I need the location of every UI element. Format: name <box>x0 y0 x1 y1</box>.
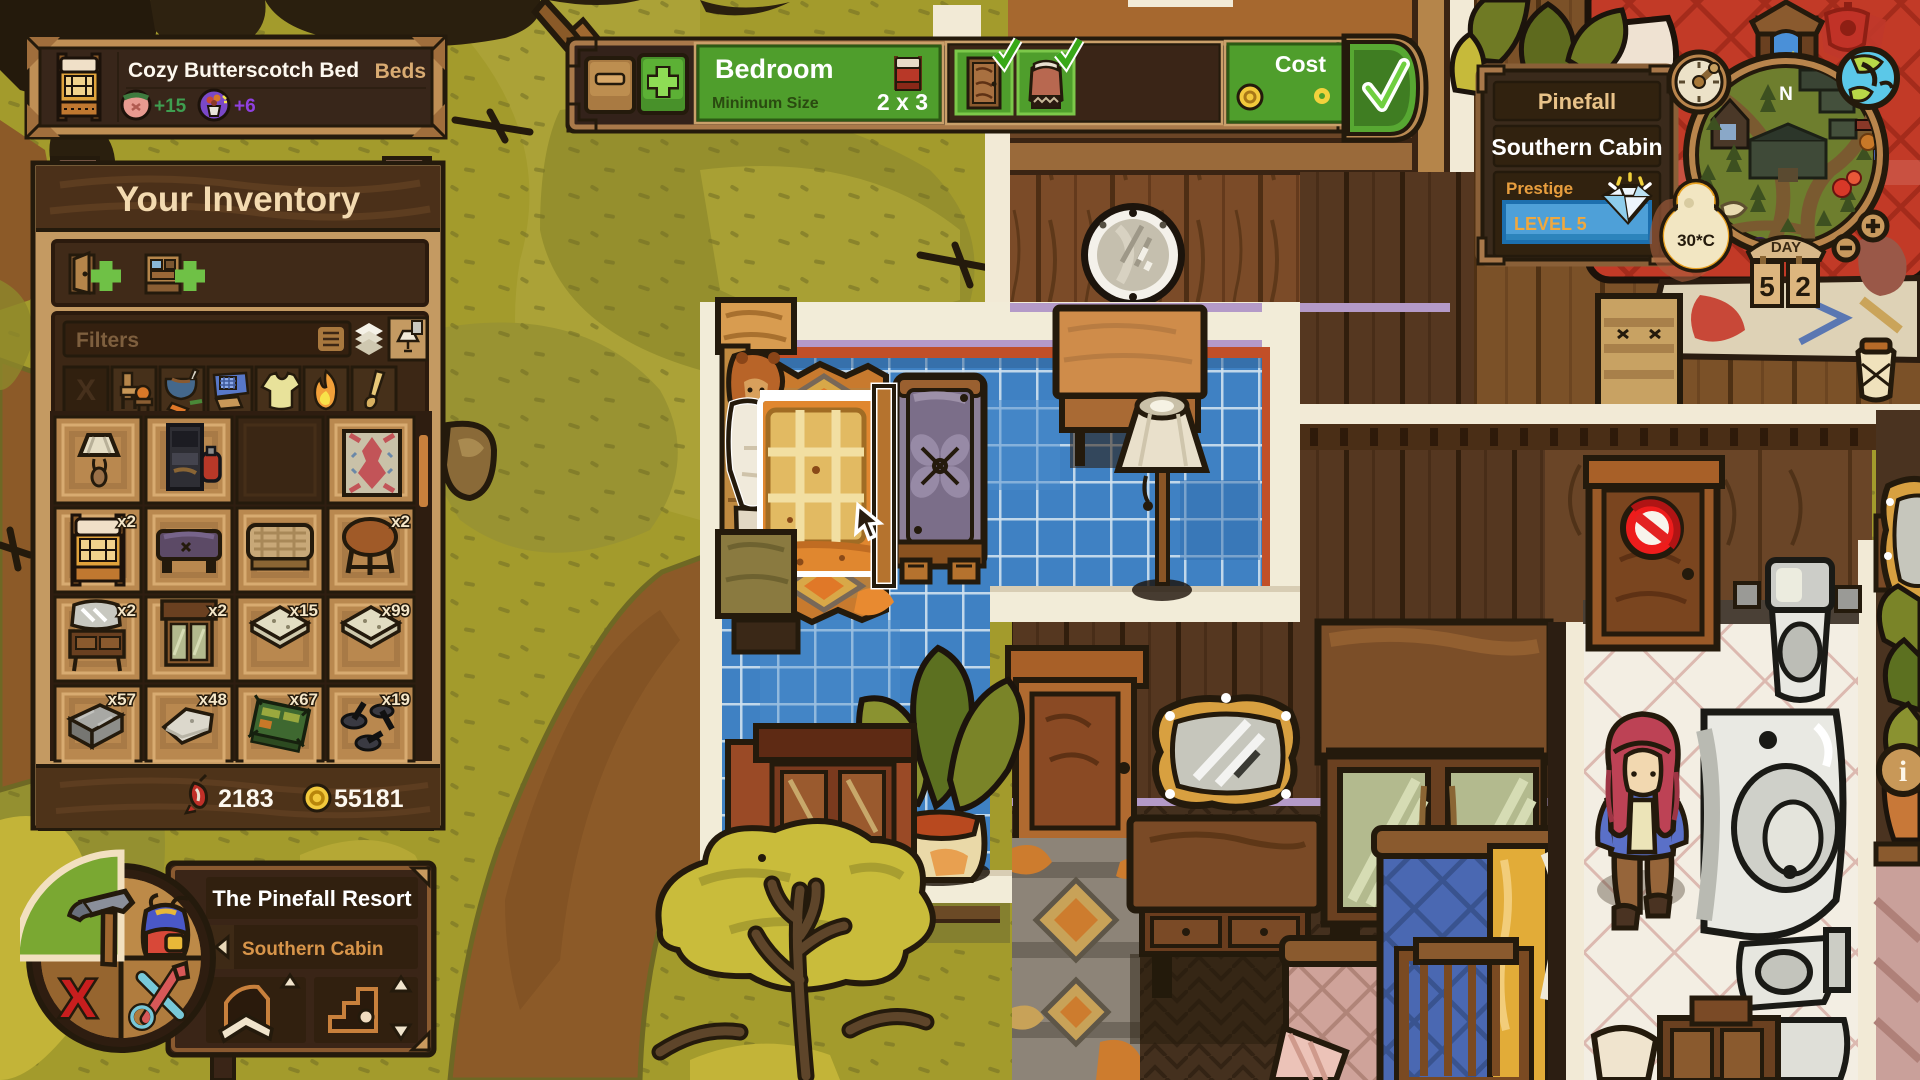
svg-text:+15: +15 <box>154 96 187 117</box>
svg-text:LEVEL 5: LEVEL 5 <box>1514 214 1587 234</box>
svg-text:The Pinefall Resort: The Pinefall Resort <box>212 886 412 911</box>
svg-text:55181: 55181 <box>334 785 404 813</box>
svg-text:DAY: DAY <box>1771 239 1801 256</box>
svg-text:5: 5 <box>1759 271 1775 302</box>
svg-text:x99: x99 <box>382 601 410 620</box>
svg-text:2183: 2183 <box>218 785 274 813</box>
svg-text:30*C: 30*C <box>1677 231 1715 250</box>
svg-text:Your Inventory: Your Inventory <box>116 180 361 219</box>
svg-text:x67: x67 <box>290 690 318 709</box>
svg-text:i: i <box>1899 755 1907 788</box>
svg-text:x2: x2 <box>117 512 136 531</box>
svg-text:x2: x2 <box>208 601 227 620</box>
svg-text:Southern Cabin: Southern Cabin <box>242 939 383 960</box>
svg-text:Bedroom: Bedroom <box>715 54 834 84</box>
svg-text:X: X <box>76 374 96 407</box>
svg-text:2 x 3: 2 x 3 <box>877 89 928 115</box>
svg-text:Pinefall: Pinefall <box>1538 89 1616 114</box>
svg-text:Prestige: Prestige <box>1506 179 1573 198</box>
svg-text:2: 2 <box>1795 271 1811 302</box>
svg-text:x57: x57 <box>108 690 136 709</box>
svg-text:Cost: Cost <box>1275 51 1326 77</box>
svg-text:X: X <box>60 969 96 1029</box>
svg-text:N: N <box>1779 84 1793 105</box>
svg-text:+6: +6 <box>234 96 256 117</box>
svg-text:Cozy Butterscotch Bed: Cozy Butterscotch Bed <box>128 59 359 82</box>
svg-text:x2: x2 <box>117 601 136 620</box>
svg-text:x15: x15 <box>290 601 318 620</box>
svg-text:Minimum Size: Minimum Size <box>712 95 819 112</box>
svg-text:x48: x48 <box>199 690 227 709</box>
svg-text:Filters: Filters <box>76 329 139 352</box>
svg-text:x19: x19 <box>382 690 410 709</box>
svg-text:Beds: Beds <box>375 60 426 83</box>
svg-text:x2: x2 <box>391 512 410 531</box>
